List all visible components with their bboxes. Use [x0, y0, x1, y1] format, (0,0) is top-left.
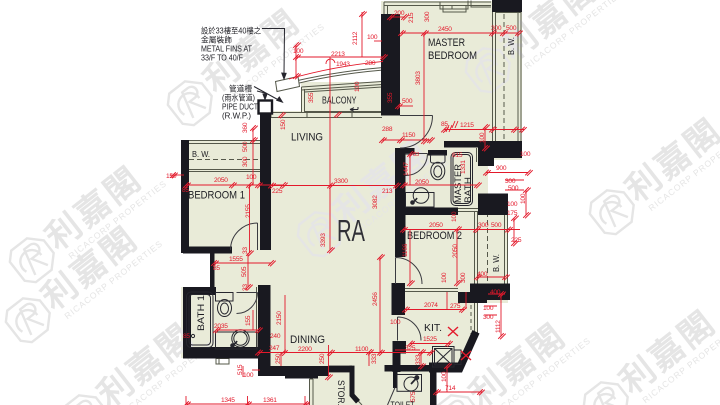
svg-text:LIVING: LIVING	[291, 132, 323, 144]
svg-text:1150: 1150	[402, 132, 416, 139]
svg-text:2150: 2150	[276, 311, 283, 325]
svg-text:3803: 3803	[415, 71, 422, 85]
svg-text:RA: RA	[337, 213, 365, 248]
svg-text:300: 300	[478, 222, 489, 229]
svg-text:BEDROOM 2: BEDROOM 2	[407, 230, 462, 242]
svg-text:500: 500	[402, 98, 413, 105]
svg-text:2456: 2456	[372, 292, 379, 306]
svg-text:300: 300	[424, 11, 431, 22]
svg-text:100: 100	[354, 81, 361, 92]
svg-text:33: 33	[413, 152, 419, 158]
svg-text:333: 333	[415, 354, 422, 365]
svg-text:1555: 1555	[229, 256, 243, 263]
svg-text:247: 247	[269, 345, 280, 352]
svg-text:85: 85	[182, 187, 189, 194]
svg-text:85: 85	[183, 333, 190, 340]
svg-text:33: 33	[242, 284, 249, 291]
svg-text:100: 100	[243, 372, 254, 379]
svg-text:2074: 2074	[424, 302, 438, 309]
svg-text:200: 200	[394, 10, 405, 17]
svg-text:2213: 2213	[331, 51, 345, 58]
svg-text:設於33樓至40樓之: 設於33樓至40樓之	[201, 26, 261, 36]
svg-text:325: 325	[405, 345, 416, 352]
svg-text:BATH: BATH	[463, 177, 473, 203]
svg-text:3300: 3300	[334, 178, 348, 185]
svg-text:3082: 3082	[372, 195, 379, 209]
svg-text:BEDROOM 1: BEDROOM 1	[188, 190, 245, 202]
svg-text:1166: 1166	[402, 243, 409, 257]
svg-text:150: 150	[280, 119, 287, 130]
svg-text:300: 300	[491, 25, 502, 32]
svg-text:500: 500	[508, 185, 519, 192]
svg-text:300: 300	[505, 178, 516, 185]
svg-text:1525: 1525	[423, 336, 437, 343]
svg-text:85: 85	[441, 121, 448, 128]
svg-text:B. W.: B. W.	[507, 37, 516, 55]
svg-text:2450: 2450	[438, 26, 452, 33]
svg-text:250: 250	[319, 353, 326, 364]
svg-text:MASTER: MASTER	[428, 37, 465, 49]
svg-text:B. W.: B. W.	[192, 150, 210, 159]
svg-text:1331: 1331	[460, 160, 467, 174]
svg-text:300: 300	[460, 272, 467, 283]
svg-text:225: 225	[272, 188, 283, 195]
svg-text:BEDROOM: BEDROOM	[428, 50, 477, 62]
svg-text:BATH 1: BATH 1	[195, 295, 206, 331]
svg-text:100: 100	[520, 193, 527, 204]
svg-text:100: 100	[246, 174, 257, 181]
svg-text:1215: 1215	[460, 122, 474, 129]
svg-text:280: 280	[365, 60, 376, 67]
svg-text:400: 400	[477, 271, 488, 278]
svg-text:KIT.: KIT.	[424, 323, 442, 334]
svg-text:100: 100	[507, 201, 518, 208]
svg-text:B. W.: B. W.	[492, 254, 501, 272]
svg-text:355: 355	[308, 92, 315, 103]
svg-text:2050: 2050	[452, 244, 459, 258]
svg-text:85: 85	[213, 265, 220, 272]
svg-text:100: 100	[441, 371, 448, 382]
svg-text:2050: 2050	[429, 222, 443, 229]
svg-text:1345: 1345	[221, 397, 235, 404]
svg-text:STOR.: STOR.	[335, 380, 346, 405]
svg-text:240: 240	[270, 333, 281, 340]
svg-text:BALCONY: BALCONY	[322, 96, 357, 107]
svg-text:1361: 1361	[263, 397, 277, 404]
svg-text:1943: 1943	[336, 61, 350, 68]
svg-text:714: 714	[445, 385, 456, 392]
svg-text:2200: 2200	[298, 346, 312, 353]
svg-text:100: 100	[520, 151, 531, 158]
svg-text:360: 360	[242, 122, 249, 133]
svg-text:815: 815	[452, 152, 463, 159]
svg-text:3393: 3393	[320, 233, 327, 247]
svg-text:288: 288	[382, 126, 393, 133]
svg-text:300: 300	[242, 156, 249, 167]
svg-text:2050: 2050	[214, 177, 228, 184]
svg-text:500: 500	[506, 25, 517, 32]
svg-text:900: 900	[496, 165, 507, 172]
svg-text:100: 100	[390, 319, 401, 326]
svg-text:275: 275	[450, 303, 461, 310]
svg-text:100: 100	[293, 48, 304, 55]
svg-text:500: 500	[491, 222, 502, 229]
svg-text:215: 215	[408, 12, 415, 23]
svg-text:575: 575	[410, 391, 417, 402]
svg-text:155: 155	[245, 315, 252, 326]
svg-text:250: 250	[275, 353, 282, 364]
svg-text:2050: 2050	[415, 179, 429, 186]
svg-text:355: 355	[387, 92, 394, 103]
svg-text:400: 400	[490, 289, 501, 296]
svg-text:2035: 2035	[214, 323, 228, 330]
svg-text:1112: 1112	[495, 320, 502, 333]
svg-text:100: 100	[441, 272, 448, 283]
svg-text:505: 505	[241, 266, 248, 277]
svg-text:DINING: DINING	[290, 334, 325, 346]
svg-text:管道槽: 管道槽	[229, 84, 252, 94]
svg-text:175: 175	[507, 210, 518, 217]
svg-text:100: 100	[483, 305, 494, 312]
svg-text:33: 33	[242, 247, 249, 254]
svg-text:515: 515	[237, 364, 244, 375]
svg-text:225: 225	[511, 237, 522, 244]
svg-text:33/F TO 40/F: 33/F TO 40/F	[201, 53, 243, 63]
svg-text:150: 150	[166, 173, 177, 180]
svg-text:(R.W.P.): (R.W.P.)	[222, 111, 251, 121]
svg-text:100: 100	[367, 34, 378, 41]
svg-text:1100: 1100	[355, 346, 369, 353]
svg-text:100: 100	[479, 132, 486, 143]
svg-text:333: 333	[371, 353, 378, 364]
svg-text:2112: 2112	[352, 31, 359, 45]
svg-text:100: 100	[451, 211, 458, 222]
svg-text:1447: 1447	[403, 162, 410, 176]
svg-text:2155: 2155	[245, 204, 252, 218]
svg-text:300: 300	[483, 314, 494, 321]
svg-text:500: 500	[242, 141, 249, 152]
svg-text:213: 213	[382, 188, 393, 195]
